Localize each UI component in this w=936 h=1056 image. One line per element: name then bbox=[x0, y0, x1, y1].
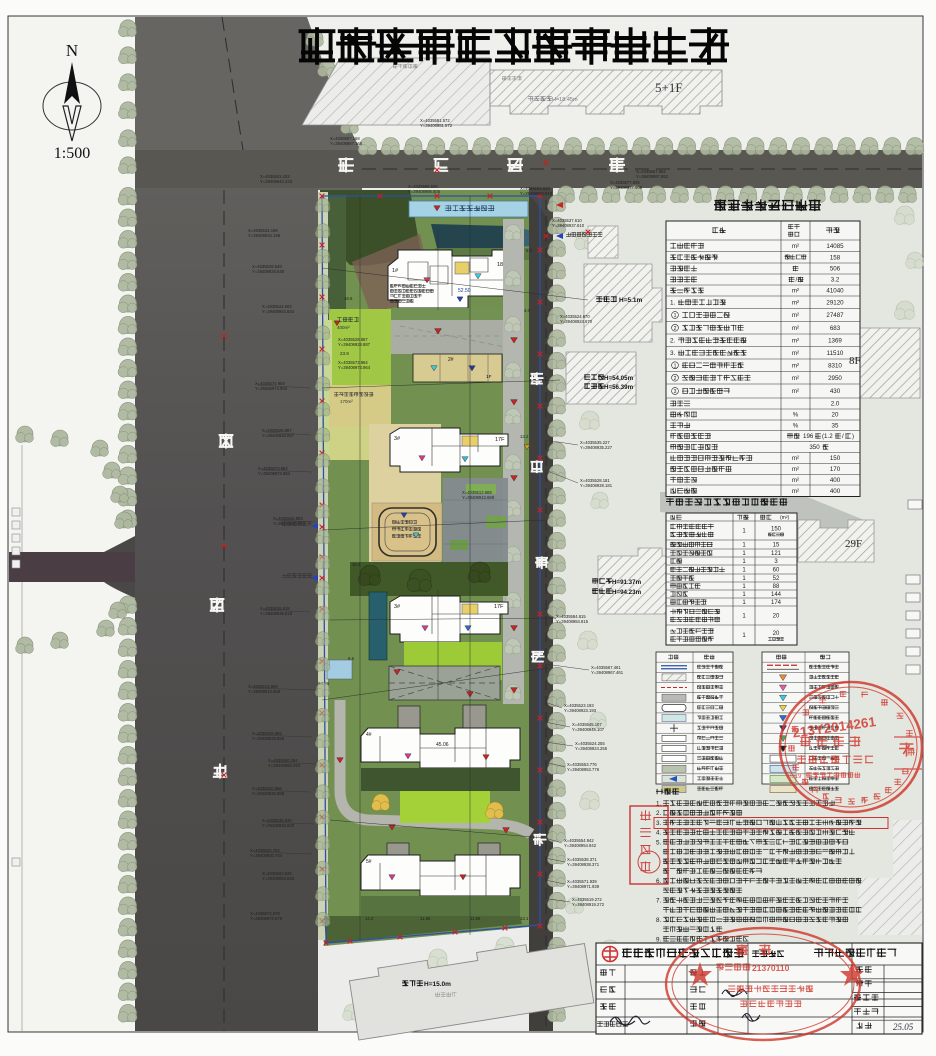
svg-text:8.: 8. bbox=[656, 917, 662, 924]
svg-text:20: 20 bbox=[773, 614, 780, 620]
svg-text:4.: 4. bbox=[656, 830, 662, 837]
svg-text:Y=39408913.669: Y=39408913.669 bbox=[248, 689, 281, 694]
svg-text:14.2: 14.2 bbox=[365, 916, 374, 921]
svg-text:17F: 17F bbox=[495, 437, 505, 443]
svg-text:17F: 17F bbox=[494, 604, 504, 610]
svg-text:Y=39408960.294: Y=39408960.294 bbox=[268, 763, 301, 768]
svg-text:174: 174 bbox=[771, 600, 782, 606]
svg-text:(m²): (m²) bbox=[780, 515, 789, 521]
svg-text:Y=39408973.679: Y=39408973.679 bbox=[250, 916, 283, 921]
svg-text:Y=39408924.670: Y=39408924.670 bbox=[560, 319, 593, 324]
svg-text:Y=39408987.168: Y=39408987.168 bbox=[330, 141, 363, 146]
svg-text:m²: m² bbox=[792, 362, 799, 369]
svg-text:H=94.23m: H=94.23m bbox=[612, 589, 642, 596]
svg-text:1: 1 bbox=[674, 363, 677, 369]
svg-text:2: 2 bbox=[674, 376, 677, 382]
svg-text:11510: 11510 bbox=[827, 350, 844, 357]
svg-text:H=5.1m: H=5.1m bbox=[619, 297, 643, 304]
svg-text:2#: 2# bbox=[448, 357, 454, 363]
svg-text:14085: 14085 bbox=[826, 243, 844, 250]
svg-text:683: 683 bbox=[830, 325, 841, 332]
svg-text:Y=39408984.815: Y=39408984.815 bbox=[556, 619, 589, 624]
svg-text:Y=39408920.704: Y=39408920.704 bbox=[250, 853, 283, 858]
svg-text:Y=39408934.198: Y=39408934.198 bbox=[248, 233, 281, 238]
svg-text:Y=39408945.107: Y=39408945.107 bbox=[572, 727, 605, 732]
svg-text:350: 350 bbox=[809, 444, 820, 451]
svg-text:Y=39408981.572: Y=39408981.572 bbox=[420, 123, 453, 128]
svg-text:20: 20 bbox=[773, 631, 780, 637]
svg-text:m²: m² bbox=[792, 299, 799, 306]
svg-text:2.: 2. bbox=[656, 810, 662, 817]
svg-text:Y=39408928.855: Y=39408928.855 bbox=[252, 736, 285, 741]
svg-text:13.1: 13.1 bbox=[520, 916, 529, 921]
svg-text:Y=39408928.181: Y=39408928.181 bbox=[580, 483, 613, 488]
svg-text:Y=39408936.830: Y=39408936.830 bbox=[262, 823, 295, 828]
svg-text:Y=39408986.505: Y=39408986.505 bbox=[408, 189, 441, 194]
svg-text:52: 52 bbox=[773, 576, 780, 582]
svg-text:m²: m² bbox=[792, 477, 799, 484]
svg-text:Y=39408993.619: Y=39408993.619 bbox=[520, 191, 553, 196]
svg-text:2950: 2950 bbox=[828, 375, 842, 382]
svg-text:52.50: 52.50 bbox=[458, 288, 471, 294]
svg-text:Y=39408971.939: Y=39408971.939 bbox=[567, 884, 600, 889]
svg-text:170: 170 bbox=[830, 466, 841, 473]
svg-text:9.: 9. bbox=[656, 936, 662, 943]
svg-text:430: 430 bbox=[830, 388, 841, 395]
svg-text:13.2: 13.2 bbox=[520, 434, 529, 439]
svg-text:4.0: 4.0 bbox=[524, 308, 531, 313]
svg-text:400: 400 bbox=[830, 477, 841, 484]
svg-text:25.05: 25.05 bbox=[893, 1022, 914, 1032]
svg-text:2019: 2019 bbox=[788, 774, 802, 780]
svg-text:m²: m² bbox=[792, 388, 799, 395]
svg-text:60: 60 bbox=[773, 568, 780, 574]
svg-text:Y=39408942.433: Y=39408942.433 bbox=[260, 179, 293, 184]
svg-text:8.6: 8.6 bbox=[348, 656, 355, 661]
svg-text:3.2: 3.2 bbox=[831, 277, 840, 284]
svg-text:Y=39408928.548: Y=39408928.548 bbox=[252, 269, 285, 274]
svg-text:m²: m² bbox=[792, 488, 799, 495]
svg-text:m²: m² bbox=[792, 466, 799, 473]
svg-text:Y=39408924.255: Y=39408924.255 bbox=[575, 746, 608, 751]
svg-text:/: / bbox=[842, 433, 844, 440]
svg-text:H=56.39m: H=56.39m bbox=[604, 384, 634, 391]
svg-text:10.4: 10.4 bbox=[352, 562, 361, 567]
svg-text:2.0: 2.0 bbox=[831, 401, 840, 408]
svg-text:H=15.0m: H=15.0m bbox=[424, 981, 451, 988]
svg-text:3.: 3. bbox=[656, 820, 662, 827]
svg-text:Y=39408973.964: Y=39408973.964 bbox=[338, 365, 371, 370]
svg-text:3#: 3# bbox=[394, 604, 401, 610]
svg-text:Y=39408953.776: Y=39408953.776 bbox=[567, 767, 600, 772]
svg-text:21370110: 21370110 bbox=[752, 963, 790, 973]
svg-text:%: % bbox=[793, 422, 799, 429]
svg-text:1#: 1# bbox=[392, 268, 399, 274]
svg-text:4#: 4# bbox=[366, 732, 372, 738]
svg-text:H=54.05m: H=54.05m bbox=[604, 375, 634, 382]
svg-text:158: 158 bbox=[830, 254, 841, 261]
svg-text:Y=39408913.669: Y=39408913.669 bbox=[462, 495, 495, 500]
svg-text:170m²: 170m² bbox=[340, 399, 353, 404]
svg-text:m²: m² bbox=[792, 243, 799, 250]
svg-text:1369: 1369 bbox=[828, 337, 842, 344]
svg-text:150: 150 bbox=[771, 527, 782, 533]
svg-text:2.: 2. bbox=[670, 337, 676, 344]
svg-text:Y=39408944.503: Y=39408944.503 bbox=[262, 309, 295, 314]
svg-text:Y=39408928.887: Y=39408928.887 bbox=[338, 342, 371, 347]
svg-text:m²: m² bbox=[792, 350, 799, 357]
svg-text:Y=39408973.964: Y=39408973.964 bbox=[258, 471, 291, 476]
svg-text:H=91.37m: H=91.37m bbox=[612, 579, 642, 586]
svg-text:41040: 41040 bbox=[826, 288, 844, 295]
svg-text:(1.2: (1.2 bbox=[822, 433, 833, 440]
svg-text:Y=39408974.959: Y=39408974.959 bbox=[255, 386, 288, 391]
svg-text:Y=39408977.905: Y=39408977.905 bbox=[610, 185, 643, 190]
svg-text:m²: m² bbox=[792, 288, 799, 295]
svg-text:Y=39408938.371: Y=39408938.371 bbox=[567, 862, 600, 867]
svg-text:20: 20 bbox=[832, 412, 839, 419]
svg-text:15: 15 bbox=[773, 543, 780, 549]
svg-text:1F: 1F bbox=[486, 374, 492, 380]
svg-text:29F: 29F bbox=[845, 538, 862, 550]
svg-text:400: 400 bbox=[830, 488, 841, 495]
svg-text:N: N bbox=[66, 41, 78, 60]
svg-text:m²: m² bbox=[792, 375, 799, 382]
svg-text:506: 506 bbox=[830, 266, 841, 273]
svg-text:150: 150 bbox=[830, 455, 841, 462]
svg-text:Y=39408923.193: Y=39408923.193 bbox=[564, 708, 597, 713]
svg-text:Y=39408919.272: Y=39408919.272 bbox=[572, 902, 605, 907]
svg-text:1:500: 1:500 bbox=[54, 145, 90, 162]
svg-text:Y=39408967.461: Y=39408967.461 bbox=[591, 670, 624, 675]
svg-text:196: 196 bbox=[803, 433, 814, 440]
svg-text:18.5: 18.5 bbox=[344, 296, 353, 301]
svg-text:121: 121 bbox=[771, 551, 782, 557]
svg-text:27487: 27487 bbox=[826, 312, 844, 319]
svg-text:): ) bbox=[852, 433, 854, 440]
svg-text:%: % bbox=[793, 412, 799, 419]
svg-text:5#: 5# bbox=[366, 859, 372, 865]
svg-text:11.86: 11.86 bbox=[470, 916, 481, 921]
svg-text:35: 35 bbox=[832, 422, 839, 429]
svg-text:Y=39408935.227: Y=39408935.227 bbox=[580, 445, 613, 450]
svg-text:88: 88 bbox=[773, 584, 780, 590]
svg-text:3: 3 bbox=[674, 389, 677, 395]
svg-text:m²: m² bbox=[792, 325, 799, 332]
svg-text:Y=39408920.886: Y=39408920.886 bbox=[252, 791, 285, 796]
svg-text:m²: m² bbox=[792, 455, 799, 462]
svg-text:6.0: 6.0 bbox=[526, 248, 533, 253]
svg-text:7.: 7. bbox=[656, 898, 662, 905]
svg-text:Y=39408935.818: Y=39408935.818 bbox=[260, 611, 293, 616]
svg-text:5.: 5. bbox=[656, 839, 662, 846]
svg-text:400m²: 400m² bbox=[337, 325, 350, 330]
svg-text:8F: 8F bbox=[849, 355, 861, 367]
svg-text:m²: m² bbox=[792, 337, 799, 344]
svg-text:144: 144 bbox=[771, 592, 782, 598]
svg-text:1: 1 bbox=[674, 313, 677, 319]
svg-text:H=18.45m: H=18.45m bbox=[552, 97, 578, 103]
svg-text:23.9: 23.9 bbox=[340, 351, 349, 356]
svg-text:29120: 29120 bbox=[826, 299, 844, 306]
svg-text:Y=39408937.610: Y=39408937.610 bbox=[552, 223, 585, 228]
svg-text:2: 2 bbox=[674, 326, 677, 332]
svg-text:3.: 3. bbox=[670, 350, 676, 357]
svg-text:5+1F: 5+1F bbox=[655, 80, 683, 95]
svg-text:Y=39408954.942: Y=39408954.942 bbox=[564, 843, 597, 848]
svg-text:3#: 3# bbox=[394, 436, 401, 442]
svg-text:Y=39408963.628: Y=39408963.628 bbox=[262, 876, 295, 881]
svg-text:11.86: 11.86 bbox=[420, 916, 431, 921]
svg-text:8310: 8310 bbox=[828, 362, 842, 369]
svg-text:m²: m² bbox=[792, 312, 799, 319]
svg-text:45.06: 45.06 bbox=[436, 742, 449, 748]
svg-text:Y=39408957.952: Y=39408957.952 bbox=[636, 174, 669, 179]
svg-text:1.: 1. bbox=[670, 299, 676, 306]
